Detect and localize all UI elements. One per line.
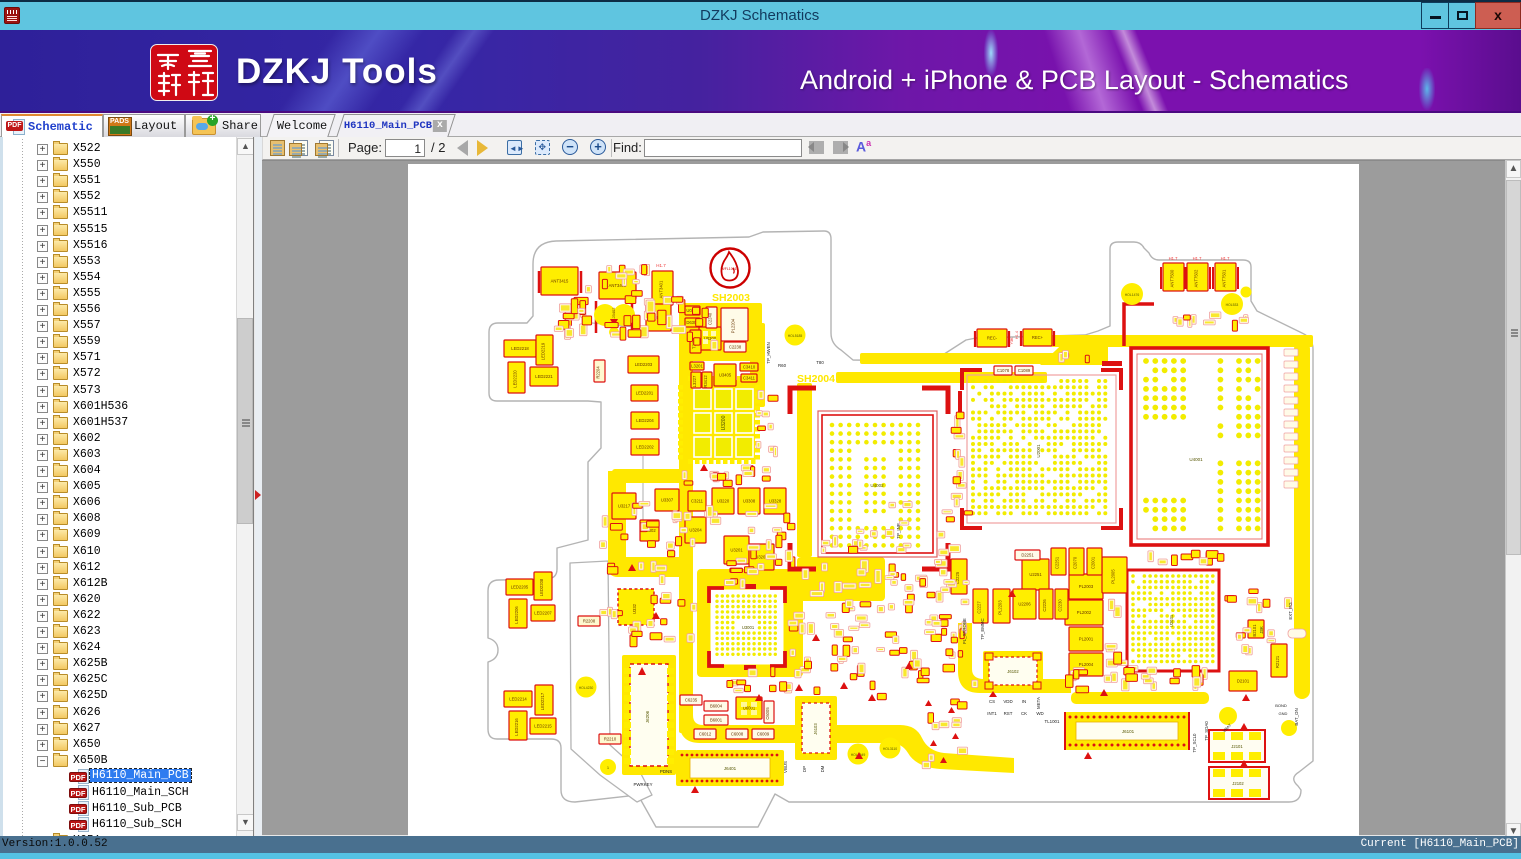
svg-text:C2227: C2227: [977, 601, 982, 614]
svg-text:ANT3415: ANT3415: [551, 279, 569, 284]
svg-text:C3410: C3410: [743, 365, 756, 370]
svg-text:RST: RST: [1004, 711, 1013, 716]
svg-text:EXT_PG: EXT_PG: [1288, 602, 1293, 620]
svg-text:C6009: C6009: [757, 732, 770, 737]
svg-text:LED2219: LED2219: [541, 342, 546, 360]
svg-text:D2251: D2251: [1021, 553, 1034, 558]
svg-text:DP: DP: [802, 766, 807, 772]
svg-text:LED2221: LED2221: [535, 374, 553, 379]
svg-text:REC-: REC-: [987, 336, 998, 341]
svg-text:R2121: R2121: [1275, 655, 1280, 668]
svg-text:J6102: J6102: [1007, 669, 1019, 674]
svg-text:C1078: C1078: [997, 368, 1010, 373]
svg-text:ANT7502: ANT7502: [1194, 269, 1199, 287]
svg-text:INT1: INT1: [987, 711, 997, 716]
svg-text:U4002: U4002: [870, 483, 884, 488]
svg-text:META: META: [1036, 697, 1041, 709]
svg-text:C2251: C2251: [1055, 556, 1060, 569]
svg-text:B6001: B6001: [710, 718, 723, 723]
svg-text:U3200: U3200: [721, 415, 727, 430]
svg-text:BOND: BOND: [1275, 703, 1287, 708]
svg-text:LED2215: LED2215: [534, 724, 552, 729]
svg-text:REC+: REC+: [1032, 335, 1044, 340]
svg-text:VBUS: VBUS: [783, 761, 788, 773]
svg-text:U2251: U2251: [1029, 572, 1042, 577]
svg-text:GND: GND: [1279, 711, 1288, 716]
svg-text:CS: CS: [989, 699, 995, 704]
svg-text:LED2203: LED2203: [635, 362, 653, 367]
svg-text:TP_SCL0: TP_SCL0: [1192, 733, 1197, 753]
svg-text:T80: T80: [816, 360, 824, 365]
svg-text:L3227: L3227: [692, 375, 697, 387]
svg-text:U2031: U2031: [1169, 614, 1174, 627]
svg-text:U4001: U4001: [1189, 457, 1203, 462]
svg-text:C1089: C1089: [1018, 368, 1031, 373]
svg-text:PL2005: PL2005: [1111, 569, 1116, 584]
svg-text:C3411: C3411: [743, 376, 756, 381]
svg-text:J3K: J3K: [1259, 626, 1264, 634]
svg-text:PL2003: PL2003: [1079, 584, 1094, 589]
svg-text:LED2214: LED2214: [509, 697, 527, 702]
svg-text:PL2004: PL2004: [1079, 662, 1094, 667]
svg-text:C6005: C6005: [765, 707, 770, 720]
svg-text:PDNS: PDNS: [660, 769, 672, 774]
svg-text:LED2208: LED2208: [539, 578, 544, 596]
svg-text:ANT7501: ANT7501: [1222, 269, 1227, 287]
svg-text:LED2207: LED2207: [534, 611, 552, 616]
svg-text:J3402: J3402: [611, 307, 616, 319]
svg-text:DM: DM: [820, 765, 825, 772]
svg-text:R60: R60: [778, 363, 787, 368]
svg-text:C2230: C2230: [1058, 599, 1063, 612]
svg-text:HOL533: HOL533: [1226, 303, 1239, 307]
svg-text:LED2205: LED2205: [511, 585, 529, 590]
svg-text:R2210: R2210: [604, 737, 617, 742]
svg-text:J6101: J6101: [1122, 729, 1135, 734]
svg-text:H1.7: H1.7: [1221, 256, 1231, 261]
svg-text:H1.7: H1.7: [1193, 256, 1203, 261]
svg-text:B6004: B6004: [710, 704, 723, 709]
svg-text:J6103: J6103: [813, 723, 818, 735]
svg-text:FL_STROBE: FL_STROBE: [962, 618, 967, 644]
svg-text:U3405: U3405: [719, 373, 732, 378]
svg-text:U2206: U2206: [1018, 602, 1031, 607]
svg-text:WFL1001: WFL1001: [721, 267, 736, 271]
svg-text:R2204: R2204: [596, 366, 601, 379]
svg-text:J2102: J2102: [1232, 781, 1244, 786]
svg-text:SH2004: SH2004: [797, 373, 835, 385]
svg-text:TP_EMMC: TP_EMMC: [980, 618, 985, 639]
svg-text:U2001: U2001: [1036, 444, 1041, 458]
svg-text:U3307: U3307: [661, 498, 674, 503]
svg-text:IN: IN: [1022, 699, 1026, 704]
svg-text:C6012: C6012: [699, 732, 712, 737]
svg-text:HOL4230: HOL4230: [579, 686, 594, 690]
svg-text:LED2201: LED2201: [636, 391, 654, 396]
svg-text:HOL1476: HOL1476: [1125, 293, 1140, 297]
svg-text:H1.7: H1.7: [1169, 256, 1179, 261]
svg-text:R2208: R2208: [583, 619, 596, 624]
svg-text:TP_SDA0: TP_SDA0: [1204, 721, 1209, 741]
svg-text:U3308: U3308: [743, 499, 756, 504]
svg-text:D2101: D2101: [1237, 679, 1250, 684]
svg-text:PL2204: PL2204: [731, 318, 736, 333]
svg-text:C2238: C2238: [729, 345, 742, 350]
svg-text:LED2204: LED2204: [636, 418, 654, 423]
svg-text:U3201: U3201: [730, 548, 743, 553]
svg-text:LED2218: LED2218: [511, 346, 529, 351]
svg-text:L3201: L3201: [691, 364, 703, 369]
svg-text:J6401: J6401: [724, 766, 737, 771]
svg-text:U3220: U3220: [717, 499, 730, 504]
svg-text:PL2002: PL2002: [1077, 610, 1092, 615]
svg-text:LED2202: LED2202: [636, 445, 654, 450]
svg-text:C2226: C2226: [1042, 599, 1047, 612]
svg-text:PL2001: PL2001: [1079, 637, 1094, 642]
svg-text:U3328: U3328: [769, 499, 782, 504]
svg-text:B2101: B2101: [1252, 624, 1257, 637]
svg-text:C2070: C2070: [1073, 556, 1078, 569]
svg-text:C2001: C2001: [1091, 556, 1096, 569]
svg-text:H1.7: H1.7: [656, 263, 666, 268]
svg-text:U3204: U3204: [689, 528, 702, 533]
svg-text:C3211: C3211: [691, 499, 704, 504]
svg-text:C6008: C6008: [731, 732, 744, 737]
svg-text:LED2216: LED2216: [514, 718, 519, 736]
svg-text:TP_INP: TP_INP: [896, 523, 901, 538]
svg-text:HOL5185: HOL5185: [788, 334, 803, 338]
svg-text:PWRKEY: PWRKEY: [633, 782, 652, 787]
svg-text:PL2203: PL2203: [998, 600, 1003, 615]
svg-text:C6235: C6235: [685, 698, 698, 703]
svg-text:SH2003: SH2003: [712, 292, 750, 304]
svg-text:TP_HWEN: TP_HWEN: [766, 342, 771, 363]
svg-text:CK: CK: [1021, 711, 1027, 716]
svg-text:J2101: J2101: [1231, 744, 1243, 749]
svg-text:TL1001: TL1001: [1045, 719, 1060, 724]
svg-text:LED2220: LED2220: [513, 370, 518, 388]
svg-text:U332: U332: [632, 603, 637, 614]
svg-text:R3412: R3412: [703, 375, 708, 388]
svg-text:Y3K: Y3K: [1010, 337, 1014, 345]
svg-text:BAT_ON: BAT_ON: [1294, 708, 1299, 725]
svg-text:VDD: VDD: [1003, 699, 1012, 704]
svg-text:H1.4: H1.4: [1015, 331, 1019, 339]
svg-text:J6206: J6206: [645, 710, 650, 723]
svg-text:LED2206: LED2206: [514, 606, 519, 624]
svg-text:ANT7500: ANT7500: [1170, 269, 1175, 287]
svg-text:LED2217: LED2217: [540, 692, 545, 710]
svg-text:WD: WD: [1036, 711, 1043, 716]
svg-text:ANT3401: ANT3401: [659, 280, 664, 298]
svg-text:U3217: U3217: [618, 504, 631, 509]
svg-text:HOL3110: HOL3110: [883, 747, 897, 751]
svg-text:U3001: U3001: [742, 625, 755, 630]
